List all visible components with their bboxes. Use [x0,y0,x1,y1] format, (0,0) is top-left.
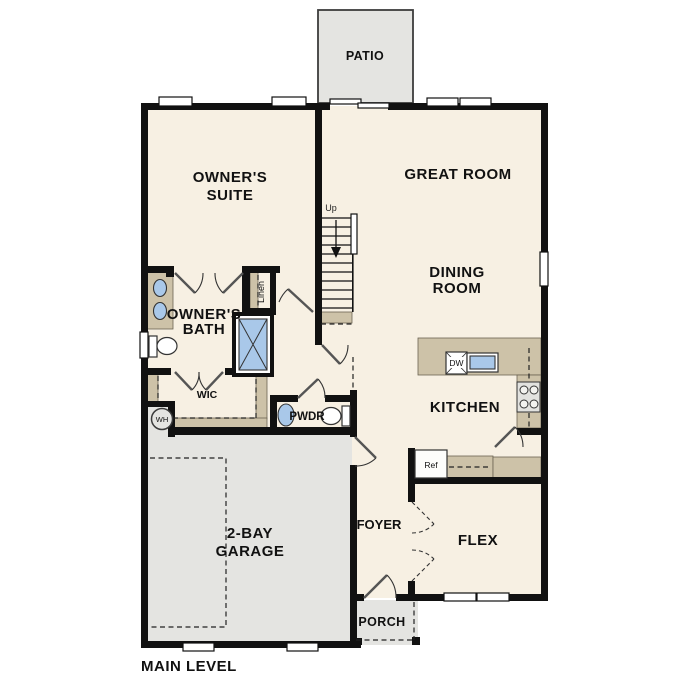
foyer-label: FOYER [357,517,402,532]
pantry-shelf [493,457,541,479]
owners-bath-label-2: BATH [183,321,226,338]
main-level-label: MAIN LEVEL [141,658,237,675]
dining-room-label-2: ROOM [433,280,482,297]
sink-icon [154,280,167,297]
wic-label: WIC [197,389,218,401]
great-room-label: GREAT ROOM [404,166,511,183]
wh-label: WH [156,415,169,424]
up-label: Up [325,203,337,213]
water-heater-icon: WH [152,409,173,430]
garage-label-1: 2-BAY [227,525,273,542]
understair-shelf [320,312,352,323]
window [427,98,458,106]
shower-icon [234,314,272,375]
dw-label: DW [449,358,463,368]
window [460,98,491,106]
owners-suite-label-1: OWNER'S [193,169,268,186]
wic-shelf-bottom [172,418,267,428]
patio-label: PATIO [346,49,384,63]
linen-label: Linen [256,281,266,303]
wic-shelf-right [256,374,267,419]
sink-icon [154,303,167,320]
floor-plan-svg: PATIO [0,0,687,687]
kitchen-label: KITCHEN [430,399,500,416]
window [540,252,548,286]
floor-plan: PATIO [0,0,687,687]
window [140,332,148,358]
window [272,97,306,106]
garage-vent [183,643,214,651]
porch-label: PORCH [358,615,405,629]
patio-slider-panel [358,103,389,108]
range-icon [517,382,540,412]
patio-slider-panel [330,99,361,104]
dining-room-label-1: DINING [429,264,485,281]
pwdr-label: PWDR [289,411,325,423]
patio-area: PATIO [318,10,413,103]
stair-rail [351,214,357,254]
owners-suite-label-2: SUITE [207,187,254,204]
dishwasher-icon: DW [446,352,467,374]
ref-label: Ref [424,460,438,470]
window [477,593,509,601]
garage-label-2: GARAGE [216,543,285,560]
kitchen-sink-icon [467,353,498,372]
window [159,97,192,106]
flex-label: FLEX [458,532,498,549]
window [444,593,476,601]
garage-vent [287,643,318,651]
toilet-icon [321,406,350,426]
wic-shelf-left [147,374,158,402]
refrigerator-icon: Ref [415,450,447,478]
